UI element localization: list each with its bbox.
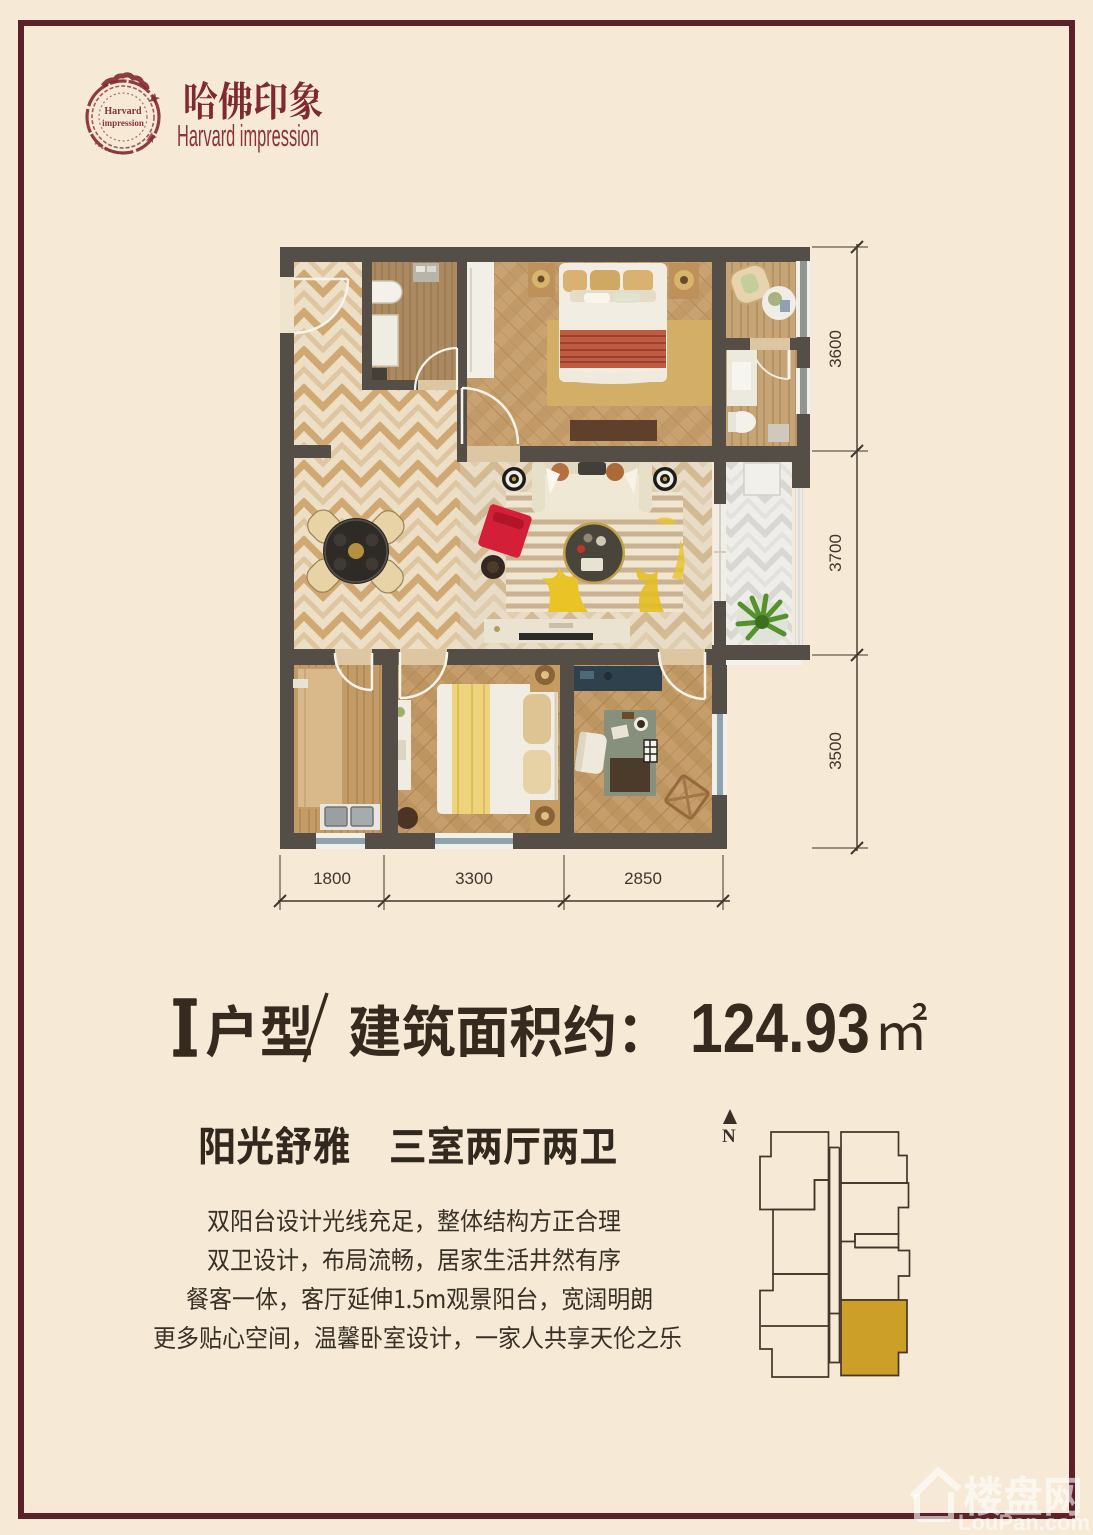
- svg-text:LouPan.com: LouPan.com: [958, 1510, 1090, 1535]
- svg-text:impression: impression: [102, 118, 144, 128]
- svg-text:Harvard impression: Harvard impression: [177, 118, 319, 153]
- svg-text:1800: 1800: [313, 869, 351, 888]
- svg-text:3600: 3600: [826, 330, 845, 368]
- svg-text:2850: 2850: [624, 869, 662, 888]
- svg-text:3300: 3300: [455, 869, 493, 888]
- svg-text:N: N: [722, 1126, 736, 1147]
- svg-text:3700: 3700: [826, 534, 845, 572]
- svg-text:3500: 3500: [826, 732, 845, 770]
- svg-text:Harvard: Harvard: [104, 106, 142, 117]
- svg-text:124.93: 124.93: [690, 988, 870, 1067]
